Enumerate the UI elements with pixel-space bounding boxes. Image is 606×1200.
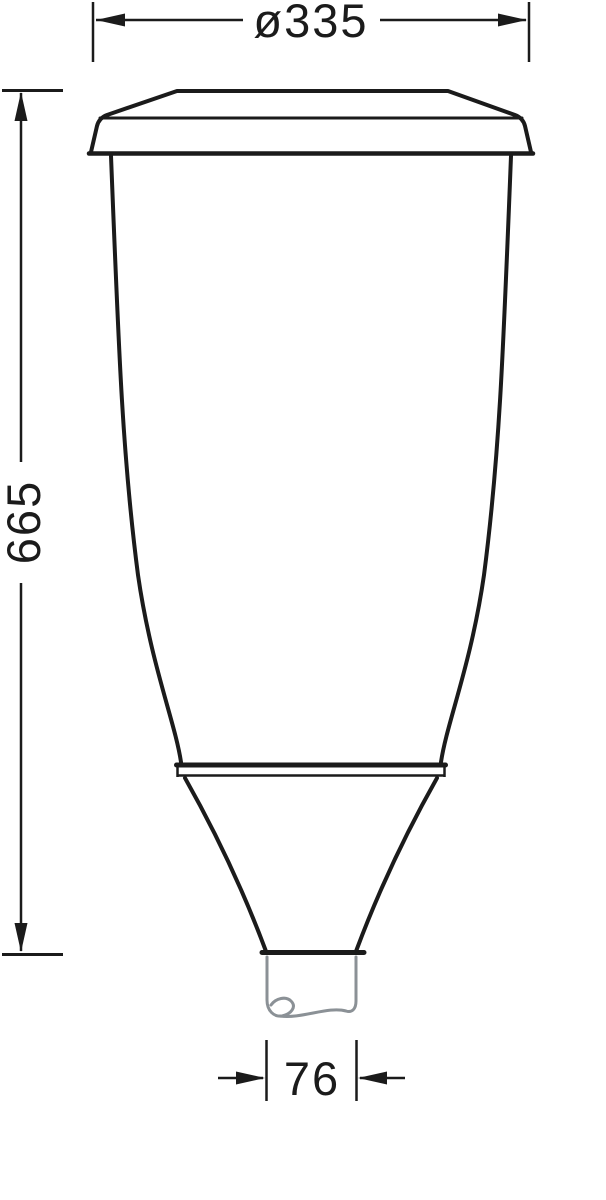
drawing-canvas: ø335 665 76 [0,0,606,1200]
spigot-right-break [280,957,356,1016]
funnel [185,778,437,953]
arrow-inward-left-icon [358,1072,387,1085]
diameter-dimension: ø335 [93,0,529,62]
arrow-up-icon [15,92,28,121]
body-right-edge [441,156,511,762]
height-dimension-label: 665 [0,480,50,564]
cap [89,91,533,154]
body [111,156,511,762]
luminaire-outline [89,91,533,1016]
cap-dome-outline [91,91,531,152]
technical-dimension-drawing: ø335 665 76 [0,0,606,1200]
height-dimension: 665 [0,91,63,955]
spigot-left-break [267,957,293,1016]
funnel-right-edge [357,778,438,950]
body-left-edge [111,156,181,762]
arrow-inward-right-icon [236,1072,265,1085]
funnel-left-edge [185,778,266,950]
arrow-right-icon [498,14,527,27]
mounting-band [177,763,446,777]
spigot [267,957,356,1016]
arrow-down-icon [15,923,28,952]
arrow-left-icon [96,14,125,27]
diameter-dimension-label: ø335 [253,0,368,47]
spigot-dimension: 76 [218,1040,405,1105]
spigot-dimension-label: 76 [284,1052,340,1105]
